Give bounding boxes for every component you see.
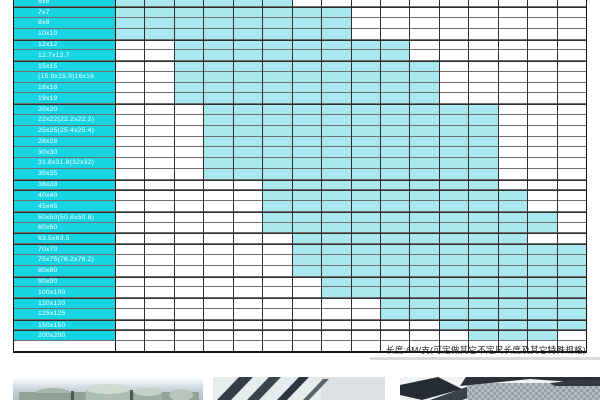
size-label-cell: 75x75(76.2x76.2) [13, 255, 115, 265]
size-label-cell: 7x7 [13, 8, 115, 17]
size-label-cell: 80x80 [13, 266, 115, 276]
size-label-cell: 35x35 [13, 169, 115, 179]
size-label-cell: 125x125 [13, 309, 115, 319]
grid-vline [409, 0, 410, 352]
size-label-cell: 10x10 [13, 29, 115, 39]
grid-vline [586, 0, 587, 352]
grid-vline [468, 0, 469, 352]
size-label: 75x75(76.2x76.2) [13, 256, 94, 263]
size-label-cell: 20x20 [13, 105, 115, 114]
availability-bar [174, 83, 439, 93]
size-label: 8x8 [13, 19, 50, 26]
availability-bar [174, 62, 439, 71]
size-label: 22x22(22.2x22.2) [13, 116, 94, 123]
size-label: 100x100 [13, 289, 65, 296]
availability-bar [380, 299, 586, 308]
grid-vline [115, 0, 116, 352]
size-label-cell: 25x25(25.4x25.4) [13, 126, 115, 136]
size-label: 12x12 [13, 41, 58, 48]
size-label: 31.8x31.8(32x32) [13, 159, 94, 166]
size-label: 10x10 [13, 30, 58, 37]
size-label-cell: (15.9x15.9)16x16 [13, 72, 115, 82]
size-label-cell: 19x19 [13, 93, 115, 103]
size-row: 25x25(25.4x25.4) [13, 126, 586, 137]
size-row: 20x20 [13, 104, 586, 115]
size-row: 12x12 [13, 40, 586, 51]
grid-vline [233, 0, 234, 352]
size-label: 18x18 [13, 84, 58, 91]
slanted-flat-bars-photo [213, 377, 385, 400]
size-row: 120x120 [13, 298, 586, 309]
grid-vline [380, 0, 381, 352]
size-row: 50x50(50.8x50.8) [13, 212, 586, 223]
table-left-border [13, 0, 14, 352]
size-row: 30x30 [13, 147, 586, 158]
size-label-cell: 38x38 [13, 181, 115, 190]
size-row: 70x70 [13, 244, 586, 255]
availability-bar [380, 309, 586, 319]
size-row: 90x90 [13, 277, 586, 288]
size-row: 28x28 [13, 137, 586, 148]
size-row: 40x40 [13, 190, 586, 201]
size-label-cell: 45x45 [13, 201, 115, 211]
size-row: 100x100 [13, 287, 586, 298]
size-row: 10x10 [13, 29, 586, 40]
size-label-cell: 120x120 [13, 299, 115, 308]
size-label: 19x19 [13, 95, 58, 102]
grid-vline [498, 0, 499, 352]
size-label-cell: 6x6 [13, 0, 115, 6]
size-label: 150x150 [13, 322, 65, 329]
size-label-cell: 12x12 [13, 41, 115, 50]
size-label-cell: 200x200 [13, 331, 115, 340]
size-label: 80x80 [13, 267, 58, 274]
size-row: 8x8 [13, 18, 586, 29]
square-tube-profiles-photo [400, 377, 600, 400]
size-row: 18x18 [13, 83, 586, 94]
availability-bar [174, 72, 439, 82]
size-label: 60x60 [13, 224, 58, 231]
size-row: 22x22(22.2x22.2) [13, 115, 586, 126]
size-label: 125x125 [13, 310, 65, 317]
size-row: 63.5x63.5 [13, 233, 586, 244]
size-row: 150x150 [13, 320, 586, 331]
size-row: 125x125 [13, 309, 586, 320]
size-label-cell: 60x60 [13, 223, 115, 233]
grid-vline [292, 0, 293, 352]
availability-bar [262, 191, 527, 200]
availability-bar [439, 321, 586, 330]
size-row: 75x75(76.2x76.2) [13, 255, 586, 266]
availability-bar [262, 201, 527, 211]
size-label-cell: 18x18 [13, 83, 115, 93]
catalog-page: 6x67x78x810x1012x1212.7x12.715x15(15.9x1… [0, 0, 600, 400]
size-label-cell: 8x8 [13, 18, 115, 28]
size-label-cell: 28x28 [13, 137, 115, 147]
availability-bar [174, 93, 439, 103]
grid-vline [557, 0, 558, 352]
size-row: 12.7x12.7 [13, 50, 586, 61]
size-label-cell: 100x100 [13, 287, 115, 297]
size-label: 90x90 [13, 278, 58, 285]
size-label: 25x25(25.4x25.4) [13, 127, 94, 134]
round-steel-billets-photo [13, 377, 203, 400]
size-label-cell: 63.5x63.5 [13, 234, 115, 243]
size-label-cell: 90x90 [13, 278, 115, 287]
size-label-cell: 40x40 [13, 191, 115, 200]
grid-vline [262, 0, 263, 352]
availability-bar [321, 278, 586, 287]
size-row: 200x200 [13, 330, 586, 341]
availability-bar [468, 331, 556, 340]
grid-vline [203, 0, 204, 352]
table-shadow-strip [370, 357, 600, 360]
grid-vline [439, 0, 440, 352]
size-label: 30x30 [13, 149, 58, 156]
size-row: 7x7 [13, 7, 586, 18]
size-label: 40x40 [13, 192, 58, 199]
size-label: 38x38 [13, 181, 58, 188]
size-label: 15x15 [13, 63, 58, 70]
size-label: 63.5x63.5 [13, 235, 70, 242]
size-label: 45x45 [13, 203, 58, 210]
size-label-cell: 150x150 [13, 321, 115, 330]
size-label-cell: 31.8x31.8(32x32) [13, 158, 115, 168]
size-label: 7x7 [13, 9, 50, 16]
size-label-cell: 15x15 [13, 62, 115, 71]
availability-bar [321, 287, 586, 297]
size-label: 35x35 [13, 170, 58, 177]
size-label-cell: 12.7x12.7 [13, 50, 115, 60]
size-row: 80x80 [13, 266, 586, 277]
size-label: 70x70 [13, 246, 58, 253]
grid-vline [321, 0, 322, 352]
size-label-cell: 22x22(22.2x22.2) [13, 115, 115, 125]
size-label-cell: 50x50(50.8x50.8) [13, 213, 115, 222]
grid-vline [527, 0, 528, 352]
size-label-cell: 70x70 [13, 245, 115, 254]
size-row: 31.8x31.8(32x32) [13, 158, 586, 169]
size-label: 120x120 [13, 300, 65, 307]
size-label: 50x50(50.8x50.8) [13, 214, 94, 221]
size-label: 6x6 [13, 0, 50, 5]
size-label: 28x28 [13, 138, 58, 145]
size-label: 12.7x12.7 [13, 52, 70, 59]
size-row: 6x6 [13, 0, 586, 7]
grid-vline [174, 0, 175, 352]
grid-vline [351, 0, 352, 352]
size-row: (15.9x15.9)16x16 [13, 72, 586, 83]
size-row: 60x60 [13, 223, 586, 234]
size-row: 35x35 [13, 169, 586, 180]
size-label: 20x20 [13, 106, 58, 113]
size-label: 200x200 [13, 332, 65, 339]
size-label: (15.9x15.9)16x16 [13, 73, 94, 80]
size-row: 15x15 [13, 61, 586, 72]
size-row: 45x45 [13, 201, 586, 212]
size-row: 38x38 [13, 180, 586, 191]
size-row: 19x19 [13, 93, 586, 104]
grid-vline [144, 0, 145, 352]
length-note: 长度:6M/支(可定做其它不定尺长度及其它特殊规格) [386, 344, 586, 356]
size-label-cell: 30x30 [13, 147, 115, 157]
